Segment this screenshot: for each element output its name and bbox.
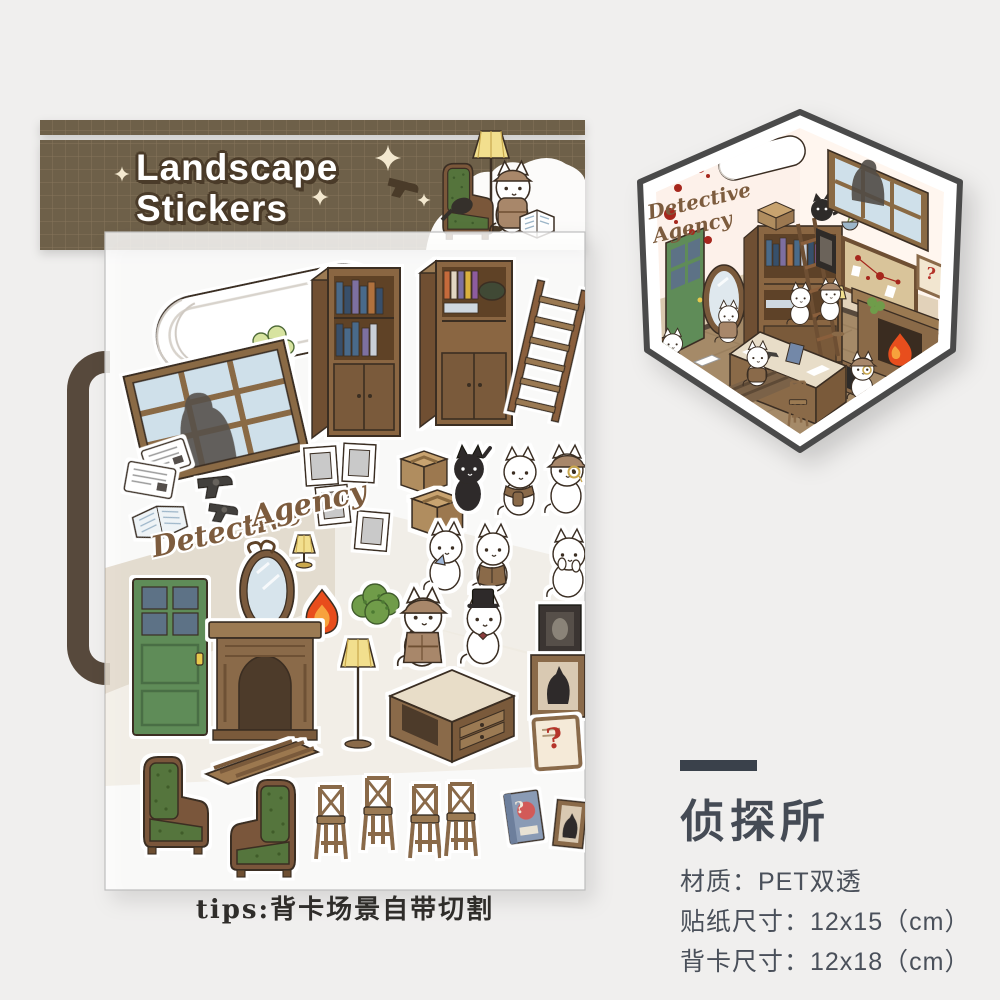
dark-portrait-frame-sticker <box>539 605 581 653</box>
divider-bar <box>680 760 757 771</box>
hex-dark-frame <box>816 228 836 274</box>
mystery-book-sticker <box>504 790 545 844</box>
sheet-sign-question-mark: ? <box>544 721 564 756</box>
tips-line: tips:背卡场景自带切割 <box>105 889 585 926</box>
tiny-cat-frame-sticker <box>553 800 588 849</box>
black-cat-frame-sticker <box>531 655 585 717</box>
green-door-sticker <box>133 579 207 735</box>
product-heading: 侦探所 <box>680 785 980 850</box>
banner-title-line2: Stickers <box>136 188 338 229</box>
product-card-size: 背卡尺寸：12x18（cm） <box>680 946 980 979</box>
banner-top-strip <box>40 120 585 135</box>
product-info: 侦探所 材质：PET双透 贴纸尺寸：12x15（cm） 背卡尺寸：12x18（c… <box>680 760 980 986</box>
product-image: Landscape Stickers Detective Agency Dete… <box>0 0 1000 1000</box>
banner-title-line1: Landscape <box>136 147 338 188</box>
table-lamp-sticker <box>293 535 315 568</box>
hexagon-scene-card <box>640 112 960 450</box>
banner-title: Landscape Stickers <box>136 147 338 229</box>
cardboard-box-sticker <box>401 451 447 493</box>
product-material: 材质：PET双透 <box>680 866 980 899</box>
fireplace-sticker <box>209 622 321 740</box>
product-sticker-size: 贴纸尺寸：12x15（cm） <box>680 906 980 939</box>
bookshelf-cabinet-sticker <box>420 261 512 427</box>
bookshelf-books-sticker <box>312 268 400 438</box>
